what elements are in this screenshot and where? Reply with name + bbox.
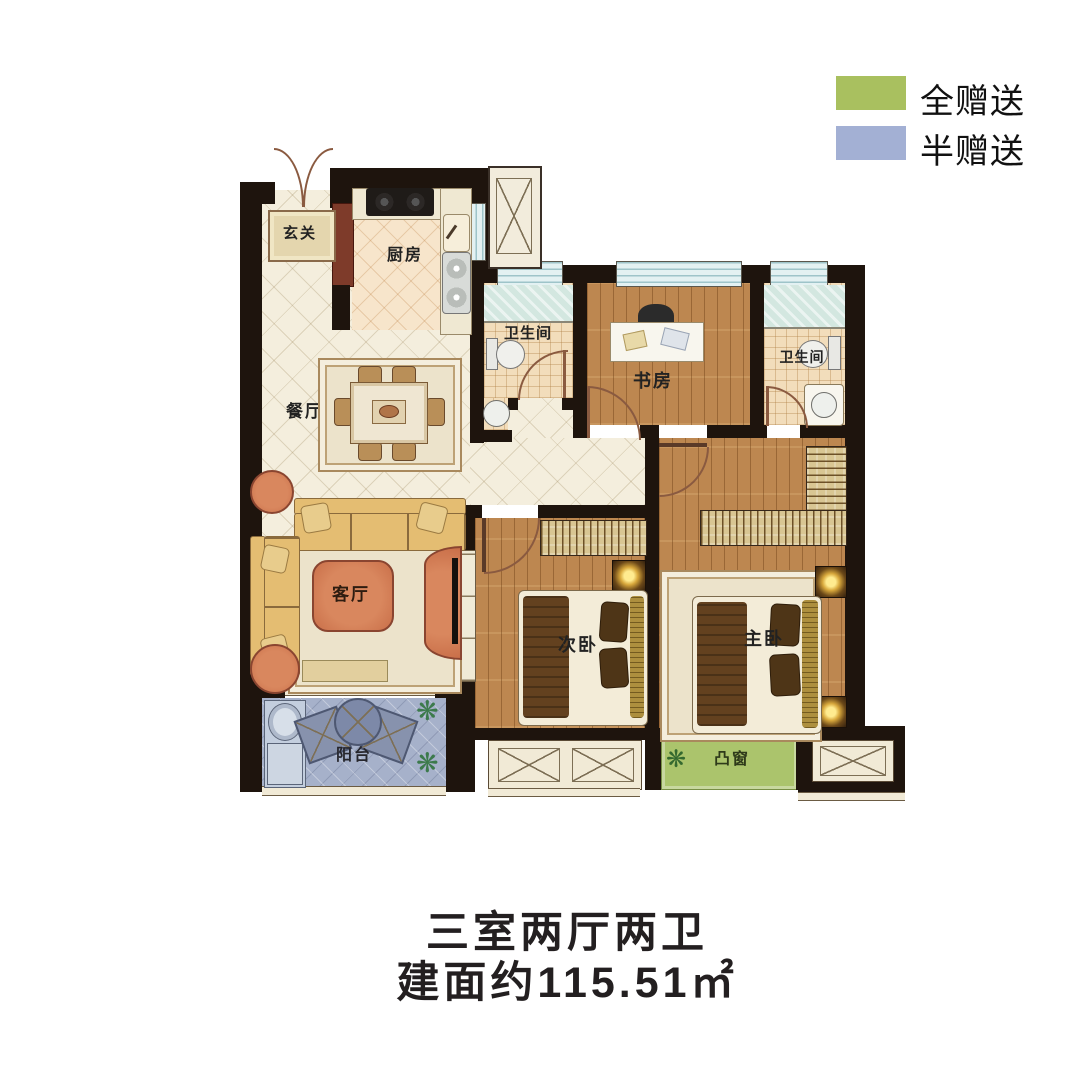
legend-swatch-half-gift bbox=[836, 126, 906, 160]
cutting-board bbox=[443, 214, 470, 252]
bath2-shower bbox=[764, 285, 845, 329]
wall-strip-bottom-a bbox=[573, 425, 587, 438]
wall-bath1-left bbox=[470, 283, 484, 443]
bedroom2-door-leaf bbox=[482, 518, 486, 572]
legend-swatch-full-gift bbox=[836, 76, 906, 110]
bedroom2-nightstand-lamp bbox=[612, 560, 646, 592]
wall-bedroom2-top-b bbox=[538, 505, 645, 518]
master-wardrobe bbox=[700, 510, 847, 546]
master-blanket bbox=[697, 602, 747, 726]
stove bbox=[366, 188, 434, 216]
room-label-bath2: 卫生间 bbox=[762, 350, 842, 364]
wall-bay-left-stub bbox=[645, 728, 661, 790]
bath2-basin bbox=[811, 392, 837, 418]
legend-label-full-gift: 全赠送 bbox=[920, 74, 1025, 123]
wall-right bbox=[845, 283, 865, 738]
window-pane-right bbox=[820, 746, 886, 776]
bedroom2-bolster bbox=[630, 596, 644, 718]
study-door-leaf bbox=[587, 386, 590, 438]
master-door-leaf bbox=[659, 443, 707, 447]
window-top-study bbox=[616, 261, 742, 287]
entry-door-arc-left bbox=[274, 148, 304, 207]
window-pane-bedroom2-b bbox=[572, 748, 634, 782]
side-table-round bbox=[250, 644, 300, 694]
master-pillow bbox=[769, 653, 801, 697]
bath2-door-leaf bbox=[766, 386, 769, 426]
room-label-bedroom2: 次卧 bbox=[548, 636, 608, 654]
dining-chair bbox=[392, 442, 416, 461]
wall-strip-bottom-c bbox=[707, 425, 767, 438]
bath1-door-leaf bbox=[563, 350, 566, 398]
hall-basin bbox=[483, 400, 510, 427]
washing-machine-front bbox=[267, 743, 303, 785]
legend-label-half-gift: 半赠送 bbox=[920, 124, 1025, 173]
plant-icon: ❋ bbox=[666, 748, 686, 772]
room-label-kitchen: 厨房 bbox=[370, 248, 440, 264]
balcony-table-round bbox=[334, 698, 382, 746]
wall-top-entry-stub bbox=[240, 182, 275, 204]
dining-chair bbox=[358, 442, 382, 461]
side-table-round bbox=[250, 470, 294, 514]
master-bolster bbox=[802, 600, 818, 728]
room-label-living: 客厅 bbox=[312, 586, 390, 603]
bath1-toilet-bowl bbox=[496, 340, 525, 369]
bedroom2-wardrobe bbox=[540, 520, 647, 556]
wall-entry-kitchen-connector bbox=[330, 168, 352, 208]
room-label-bay-window: 凸窗 bbox=[700, 752, 764, 768]
room-label-master: 主卧 bbox=[732, 630, 796, 648]
floor-hallway bbox=[470, 438, 645, 505]
master-nightstand-lamp bbox=[815, 566, 847, 598]
wall-strip-bottom-b bbox=[640, 425, 659, 438]
window-sill-right bbox=[798, 792, 905, 801]
tv bbox=[452, 558, 458, 644]
plan-title-area: 建面约115.51㎡ bbox=[67, 948, 1067, 1010]
room-label-balcony: 阳台 bbox=[322, 748, 386, 764]
sofa-pillow bbox=[260, 544, 291, 575]
wall-bedroom2-top-a bbox=[475, 505, 482, 518]
living-bench bbox=[302, 660, 388, 682]
window-pane-bedroom2-a bbox=[498, 748, 560, 782]
dining-centerpiece-dish bbox=[379, 405, 399, 418]
master-wardrobe-side bbox=[806, 446, 847, 512]
plant-icon: ❋ bbox=[416, 750, 439, 777]
kitchen-sink bbox=[442, 252, 471, 314]
wall-balcony-right bbox=[446, 680, 475, 792]
entry-door-arc-right bbox=[303, 148, 333, 207]
plant-icon: ❋ bbox=[416, 698, 439, 725]
wall-balcony-left bbox=[240, 680, 262, 792]
window-top-bath2 bbox=[770, 261, 828, 287]
flue-shaft-pane bbox=[496, 178, 532, 254]
bath1-shower bbox=[484, 285, 573, 323]
wall-bath1-study bbox=[573, 283, 587, 438]
wall-bath1-bottom-a bbox=[508, 398, 518, 410]
room-label-entry: 玄关 bbox=[268, 226, 332, 241]
dining-chair bbox=[426, 398, 445, 426]
sofa-pillow bbox=[300, 502, 332, 534]
wall-basin-niche-bottom bbox=[470, 430, 512, 442]
wall-bedroom2-bottom bbox=[475, 728, 659, 740]
window-sill-bedroom2 bbox=[488, 788, 640, 797]
room-label-bath1: 卫生间 bbox=[488, 326, 568, 341]
bedroom2-blanket bbox=[523, 596, 569, 718]
room-label-study: 书房 bbox=[618, 372, 688, 390]
wall-entry-cabinet-base bbox=[332, 285, 350, 330]
